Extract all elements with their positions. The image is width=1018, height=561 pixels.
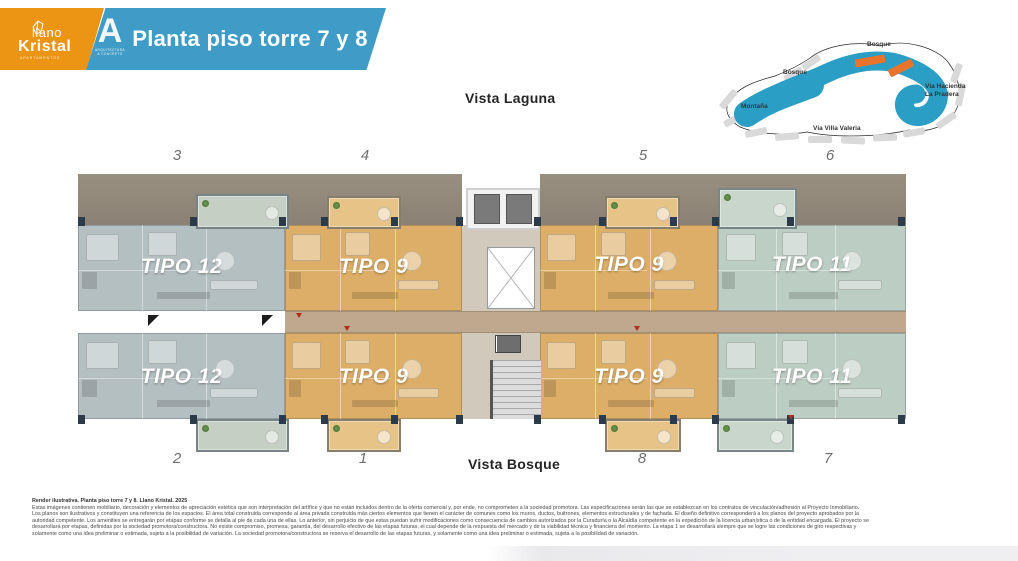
disclaimer-line: solamente como una idea preliminar o est… (32, 531, 992, 538)
legal-disclaimer: Render ilustrativa. Planta piso torre 7 … (32, 498, 992, 538)
furniture (654, 280, 695, 290)
furniture (547, 234, 576, 262)
furniture (595, 333, 596, 419)
furniture (157, 400, 211, 407)
furniture (142, 333, 143, 419)
wall-accent (279, 415, 286, 424)
balcony (196, 419, 289, 452)
plant-icon (333, 202, 340, 209)
balcony (605, 196, 680, 229)
furniture (722, 272, 735, 289)
wall-accent (599, 217, 606, 226)
furniture (148, 340, 177, 364)
corridor (285, 311, 906, 333)
wall-accent (712, 415, 719, 424)
wall-accent (279, 217, 286, 226)
disclaimer-line: Los planos son ilustrativos y constituye… (32, 511, 992, 518)
wall-accent (78, 217, 85, 226)
furniture (289, 272, 301, 289)
furniture (838, 280, 881, 290)
furniture (722, 380, 735, 397)
wall-accent (456, 217, 463, 226)
furniture (776, 225, 777, 311)
furniture (789, 400, 838, 407)
furniture (540, 378, 647, 379)
furniture (547, 342, 576, 370)
furniture (340, 333, 341, 419)
wall-accent (391, 217, 398, 226)
wall-accent (599, 415, 606, 424)
balcony-table (656, 207, 670, 221)
plant-icon (724, 194, 731, 201)
plant-icon (723, 425, 730, 432)
furniture (595, 225, 596, 311)
furniture (340, 225, 341, 311)
wall-accent (534, 217, 541, 226)
wall-accent (898, 217, 905, 226)
door-marker (788, 415, 794, 420)
furniture (78, 378, 202, 379)
balcony-table (377, 207, 391, 221)
furniture (292, 342, 321, 370)
furniture (82, 272, 96, 289)
wall-accent (190, 217, 197, 226)
balcony-table (265, 206, 279, 220)
furniture (86, 234, 119, 262)
furniture (718, 378, 831, 379)
disclaimer-line: Estas imágenes contienen mobiliario, dec… (32, 505, 992, 512)
unit-tipo9-bottom-right: TIPO 9 (540, 333, 718, 419)
door-marker (634, 326, 640, 331)
balcony-table (377, 430, 391, 444)
furniture (544, 272, 556, 289)
disclaimer-line: autoridad competente. Los amenities se e… (32, 518, 992, 525)
furniture (789, 292, 838, 299)
wall-accent (670, 217, 677, 226)
unit-tipo11-bottom: TIPO 11 (718, 333, 906, 419)
wall-accent (321, 415, 328, 424)
furniture (352, 400, 398, 407)
furniture (398, 388, 439, 398)
unit-tipo11-top: TIPO 11 (718, 225, 906, 311)
furniture (726, 234, 756, 262)
furniture (838, 388, 881, 398)
stairwell (490, 360, 541, 419)
page: llano Kristal APARTAMENTOS Planta piso t… (0, 0, 1018, 561)
unit-tipo9-top-left: TIPO 9 (285, 225, 462, 311)
furniture (78, 270, 202, 271)
plant-icon (611, 425, 618, 432)
balcony-table (773, 203, 787, 217)
furniture (289, 380, 301, 397)
plant-icon (202, 200, 209, 207)
entrance-door (262, 315, 273, 326)
disclaimer-title: Render ilustrativa. Planta piso torre 7 … (32, 498, 992, 505)
door-marker (344, 326, 350, 331)
atrium-void (487, 247, 535, 309)
furniture (402, 251, 422, 271)
furniture (148, 232, 177, 256)
furniture (285, 270, 391, 271)
furniture (142, 225, 143, 311)
unit-tipo12-bottom: TIPO 12 (78, 333, 285, 419)
furniture (157, 292, 211, 299)
furniture (352, 292, 398, 299)
wall-accent (670, 415, 677, 424)
furniture (215, 251, 235, 271)
wall-accent (712, 217, 719, 226)
balcony-table (770, 430, 784, 444)
furniture (398, 280, 439, 290)
wall-accent (321, 217, 328, 226)
balcony (718, 188, 797, 229)
unit-tipo12-top: TIPO 12 (78, 225, 285, 311)
wall-accent (898, 415, 905, 424)
furniture (842, 359, 862, 379)
elevator-shaft (474, 194, 500, 224)
entrance-door (148, 315, 159, 326)
plant-icon (202, 425, 209, 432)
wall-accent (534, 415, 541, 424)
furniture (345, 232, 370, 256)
furniture (210, 388, 258, 398)
furniture (601, 340, 626, 364)
wall-accent (391, 415, 398, 424)
balcony (327, 196, 401, 229)
furniture (654, 388, 695, 398)
furniture (345, 340, 370, 364)
furniture (842, 251, 862, 271)
utility-shaft (495, 335, 521, 353)
furniture (210, 280, 258, 290)
furniture (782, 232, 808, 256)
furniture (86, 342, 119, 370)
elevators (466, 188, 540, 230)
balcony-table (657, 430, 671, 444)
furniture (215, 359, 235, 379)
plant-icon (333, 425, 340, 432)
wall-accent (78, 415, 85, 424)
furniture (292, 234, 321, 262)
furniture (601, 232, 626, 256)
furniture (608, 292, 654, 299)
balcony (196, 194, 289, 229)
furniture (776, 333, 777, 419)
disclaimer-line: desarrollará por etapas, definidas por l… (32, 524, 992, 531)
elevator-shaft (506, 194, 532, 224)
furniture (608, 400, 654, 407)
furniture (402, 359, 422, 379)
furniture (718, 270, 831, 271)
footer-bar (488, 546, 1018, 561)
wall-accent (787, 217, 794, 226)
plant-icon (611, 202, 618, 209)
furniture (285, 378, 391, 379)
balcony (717, 419, 794, 452)
furniture (544, 380, 556, 397)
furniture (540, 270, 647, 271)
floor-plan: TIPO 12 TIPO 9 TIPO 9 TIPO 11 TIPO 12 TI… (0, 0, 1018, 561)
wall-accent (456, 415, 463, 424)
balcony-table (265, 430, 279, 444)
balcony (327, 419, 401, 452)
furniture (726, 342, 756, 370)
door-marker (296, 313, 302, 318)
unit-tipo9-top-right: TIPO 9 (540, 225, 718, 311)
unit-tipo9-bottom-left: TIPO 9 (285, 333, 462, 419)
furniture (782, 340, 808, 364)
wall-accent (190, 415, 197, 424)
furniture (82, 380, 96, 397)
